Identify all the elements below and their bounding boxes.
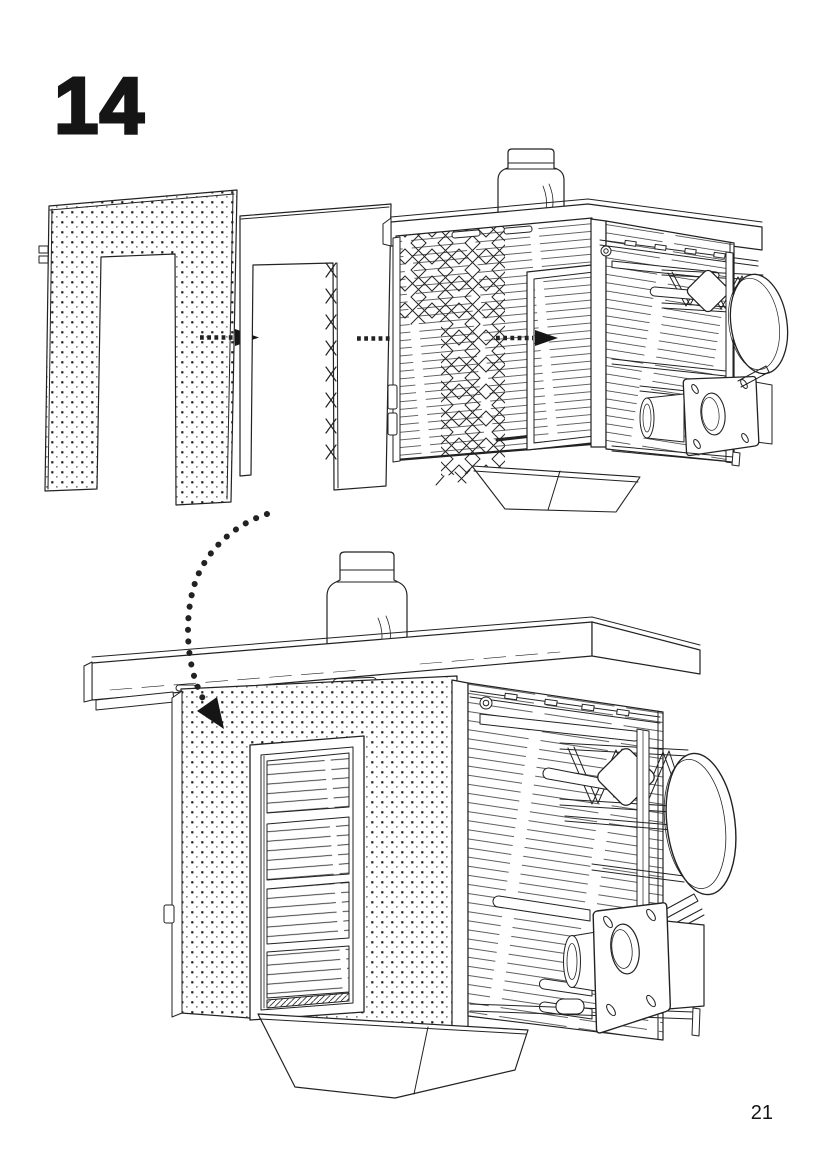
- base-tub-large: [258, 1014, 528, 1098]
- assembly-illustration: [0, 0, 827, 1169]
- door-open: [250, 736, 364, 1020]
- door-frame: [527, 264, 601, 450]
- corner-post-large: [452, 680, 468, 1037]
- instruction-manual-page: 14: [0, 0, 827, 1169]
- exploded-view: [39, 149, 794, 512]
- cabin-assembled: [84, 552, 743, 1098]
- textured-wall-panel: [39, 190, 237, 505]
- cabin-partial: [383, 149, 794, 512]
- assembly-diagram-svg: [0, 0, 827, 1169]
- chimney-large: [327, 552, 407, 648]
- inner-wall-panel: [240, 204, 391, 490]
- base-tub: [472, 466, 640, 512]
- page-number: 21: [751, 1102, 773, 1125]
